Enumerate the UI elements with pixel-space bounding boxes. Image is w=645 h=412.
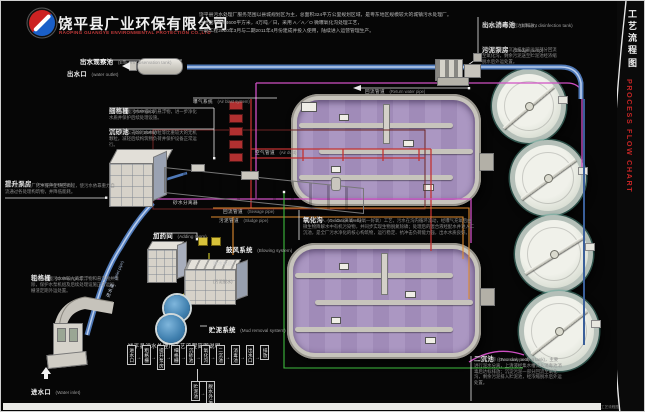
label-blower-system: 鼓风系统 (Blowing system): [226, 239, 292, 257]
disinfection-desc: 出水经消毒处理后达标排放。: [482, 23, 567, 29]
flow-box: 沉砂池: [186, 345, 195, 365]
distribution-box-lower: [480, 288, 495, 306]
flow-box: 氧化沟: [201, 345, 210, 365]
secondary-clarifier-desc: 二沉池又称 (secondary settling tank)，主要进行泥水分离…: [474, 357, 562, 386]
outlet-arrow-icon: [122, 62, 130, 70]
inlet-arrow-stem: [44, 374, 48, 379]
flow-box: 粗格栅: [142, 345, 151, 365]
flow-box: 消毒池: [231, 345, 240, 365]
label-dewatering-room: 脱水机房 (污泥脱水): [213, 252, 233, 288]
grit-basin-desc: 沉砂池用以去除污水中砂粒等比重较大的无机颗粒，减轻后续构筑物负荷并保护设备正常运…: [109, 130, 201, 147]
company-logo: [29, 10, 55, 36]
oxidation-ditch-desc: 氧化沟为 A／A／O（厌氧—缺氧—好氧）工艺，污水在沟内循环流动，经曝气充氧后由…: [303, 218, 475, 235]
flow-box: 二沉池: [216, 345, 225, 365]
label-return-pipe: 回流管道 (Return water pipe): [365, 80, 425, 98]
flow-box: 细格栅: [171, 345, 180, 365]
label-aeration-system: 曝气系统 (Air blast system): [193, 90, 250, 108]
inlet-arrow-icon: [41, 367, 51, 374]
plant-introduction: 饶平县污水处理厂服务范围以县城规划区为主，总面积324平方公里规划区域，是粤东地…: [199, 12, 452, 36]
strip-title-en: PROCESS FLOW CHART: [625, 79, 634, 193]
flow-box: 排放: [260, 345, 269, 360]
flow-box: 出水口: [246, 345, 255, 365]
sludge-pump-desc: 污泥泵房把二沉池排出的污泥部分回流至氧化沟，剩余污泥送至贮泥池经浓缩脱水后外运处…: [482, 47, 560, 64]
flow-box: 贮泥池: [191, 381, 200, 401]
label-water-outlet: 出水口 (water outlet): [67, 63, 118, 81]
corner-note: 工艺流程图: [601, 405, 619, 410]
label-sand-separator: 砂水分离器: [173, 191, 198, 209]
label-dosing-room: 加药间 (Adding room): [153, 225, 207, 243]
label-sludge-pipe: 污泥管道 (Sludge pipe): [219, 209, 268, 227]
process-flow-chart-poster: 饶平县广业环保有限公司 RAOPING GUANGYE ENVIRONMENTA…: [0, 0, 645, 412]
flow-box: 提升泵房: [157, 345, 166, 370]
title-strip: 工艺流程图 PROCESS FLOW CHART: [617, 1, 644, 412]
strip-title-zh: 工艺流程图: [626, 8, 639, 69]
coarse-screen-2: [69, 328, 78, 342]
fine-grid-desc: 细格栅拦截污水中细小的悬浮物，进一步净化水质并保护后续处理设施。: [109, 109, 201, 121]
flow-box: 进水口: [127, 345, 136, 365]
pumping-station-desc: 提升泵房把进厂污水提升至场区高程，使污水依靠重力自流通过各处理构筑物，并降低能耗…: [5, 183, 115, 195]
distribution-box-upper: [479, 153, 494, 171]
label-water-inlet: 进水口 (Water inlet): [31, 381, 80, 399]
coarse-screen-1: [57, 328, 66, 342]
company-name-en: RAOPING GUANGYE ENVIRONMENTAL PROTECTION…: [59, 30, 211, 35]
label-air-duct: 空气管道 (Air duct): [255, 141, 296, 159]
bottom-border-band: [3, 403, 601, 410]
flow-chart-row: 进水口→ 粗格栅→ 提升泵房→ 细格栅→ 沉砂池→ 氧化沟→ 二沉池→ 消毒池→…: [127, 345, 269, 370]
